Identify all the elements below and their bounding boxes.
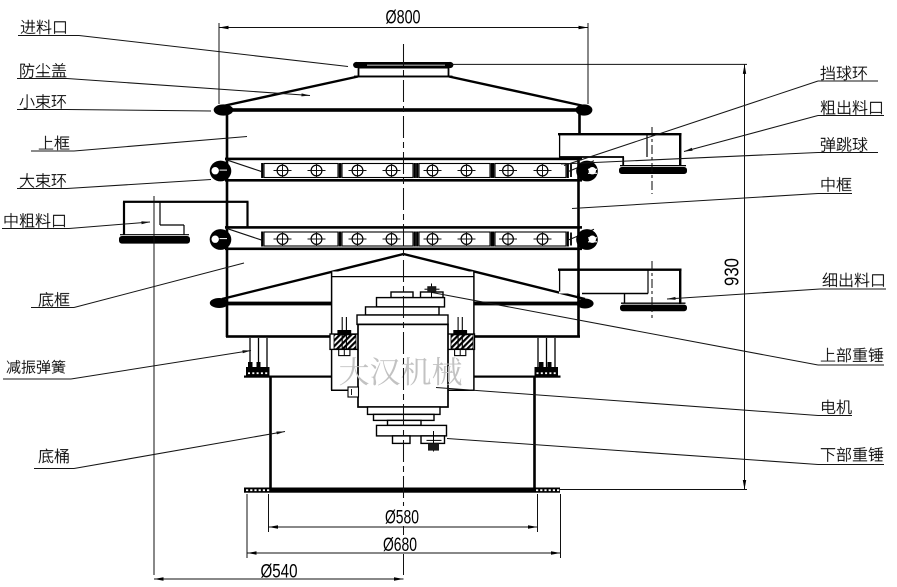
svg-text:930: 930 [722,258,744,286]
svg-text:Ø680: Ø680 [383,535,417,556]
svg-text:Ø800: Ø800 [386,8,421,29]
svg-text:Ø540: Ø540 [261,562,298,583]
svg-text:Ø580: Ø580 [385,508,419,529]
